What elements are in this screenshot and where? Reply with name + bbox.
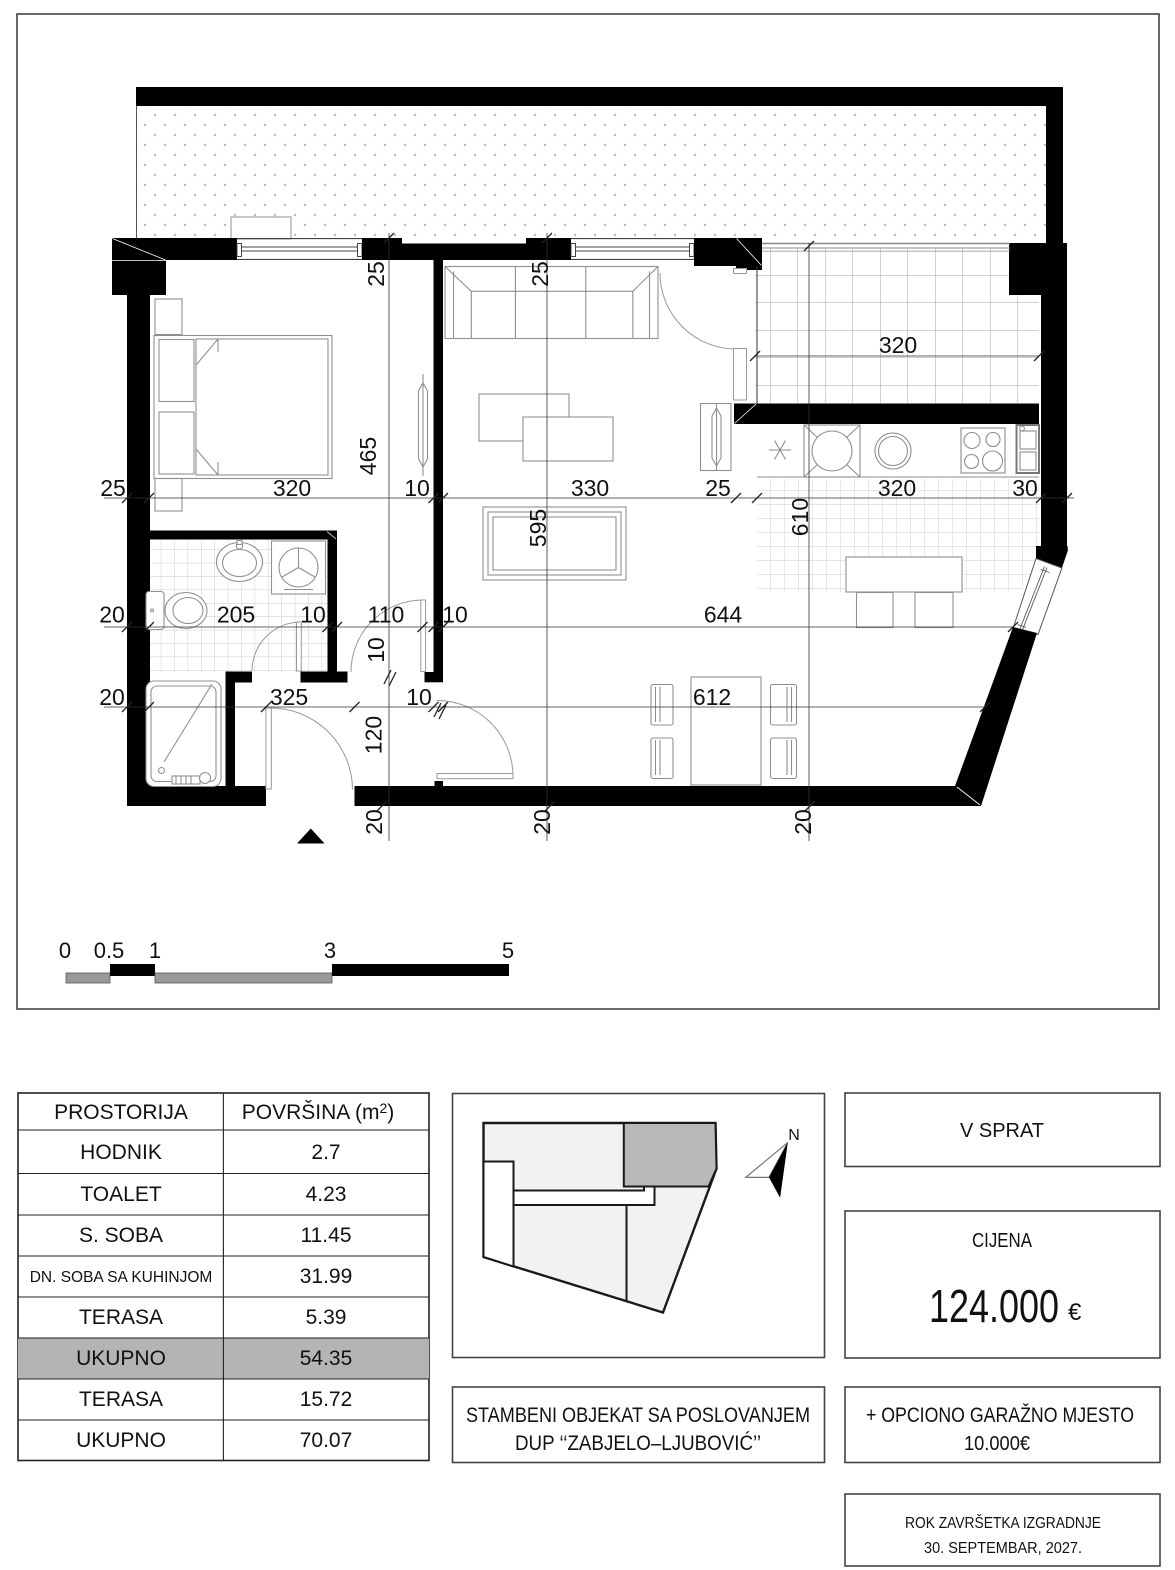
svg-text:25: 25: [705, 475, 731, 501]
svg-text:330: 330: [571, 475, 609, 501]
svg-text:0: 0: [59, 938, 71, 963]
svg-text:DUP ‘‘ZABJELO–LJUBOVIĆ’’: DUP ‘‘ZABJELO–LJUBOVIĆ’’: [515, 1432, 761, 1455]
svg-text:10: 10: [404, 475, 430, 501]
svg-text:320: 320: [879, 332, 917, 358]
svg-text:3: 3: [324, 938, 336, 963]
svg-text:20: 20: [361, 809, 387, 835]
svg-text:0.5: 0.5: [94, 938, 125, 963]
svg-text:5: 5: [502, 938, 514, 963]
svg-text:HODNIK: HODNIK: [80, 1141, 162, 1164]
svg-text:2.7: 2.7: [311, 1141, 340, 1164]
svg-text:70.07: 70.07: [300, 1429, 353, 1452]
svg-text:30: 30: [1012, 475, 1038, 501]
svg-text:PROSTORIJA: PROSTORIJA: [54, 1101, 188, 1124]
svg-text:25: 25: [527, 261, 553, 287]
svg-text:10: 10: [363, 637, 389, 663]
svg-text:610: 610: [787, 498, 813, 536]
svg-text:612: 612: [693, 684, 731, 710]
svg-text:1: 1: [149, 938, 161, 963]
svg-text:10: 10: [406, 684, 432, 710]
svg-text:25: 25: [100, 475, 126, 501]
svg-text:20: 20: [529, 809, 555, 835]
svg-text:320: 320: [878, 475, 916, 501]
svg-text:€: €: [1068, 1299, 1082, 1326]
svg-text:124.000: 124.000: [929, 1280, 1059, 1332]
svg-text:S. SOBA: S. SOBA: [79, 1224, 163, 1247]
svg-text:205: 205: [217, 602, 255, 628]
svg-text:5.39: 5.39: [306, 1306, 347, 1329]
svg-text:15.72: 15.72: [300, 1388, 353, 1411]
svg-text:UKUPNO: UKUPNO: [76, 1429, 166, 1452]
svg-text:20: 20: [99, 684, 125, 710]
svg-text:465: 465: [355, 437, 381, 475]
svg-text:DN. SOBA SA KUHINJOM: DN. SOBA SA KUHINJOM: [30, 1269, 213, 1286]
svg-text:31.99: 31.99: [300, 1265, 353, 1288]
svg-text:20: 20: [99, 602, 125, 628]
svg-text:30. SEPTEMBAR, 2027.: 30. SEPTEMBAR, 2027.: [924, 1540, 1082, 1557]
svg-text:10: 10: [300, 602, 326, 628]
svg-text:TOALET: TOALET: [80, 1183, 161, 1206]
svg-text:11.45: 11.45: [301, 1224, 352, 1247]
svg-text:TERASA: TERASA: [79, 1388, 163, 1411]
svg-text:595: 595: [525, 509, 551, 547]
svg-text:TERASA: TERASA: [79, 1306, 163, 1329]
svg-text:N: N: [788, 1127, 800, 1144]
svg-text:STAMBENI OBJEKAT SA POSLOVANJE: STAMBENI OBJEKAT SA POSLOVANJEM: [466, 1404, 810, 1427]
svg-text:25: 25: [363, 261, 389, 287]
svg-text:UKUPNO: UKUPNO: [76, 1347, 166, 1370]
svg-text:CIJENA: CIJENA: [972, 1230, 1033, 1252]
svg-text:20: 20: [790, 809, 816, 835]
svg-text:110: 110: [368, 602, 405, 628]
svg-text:V SPRAT: V SPRAT: [960, 1120, 1044, 1142]
svg-text:+ OPCIONO GARAŽNO MJESTO: + OPCIONO GARAŽNO MJESTO: [866, 1404, 1134, 1427]
svg-text:POVRŠINA (m2): POVRŠINA (m2): [242, 1100, 395, 1124]
svg-text:4.23: 4.23: [306, 1183, 347, 1206]
svg-text:325: 325: [270, 684, 308, 710]
svg-text:320: 320: [273, 475, 311, 501]
svg-text:644: 644: [704, 602, 743, 628]
svg-text:10.000€: 10.000€: [964, 1433, 1030, 1455]
svg-text:10: 10: [442, 602, 468, 628]
svg-text:54.35: 54.35: [300, 1347, 353, 1370]
svg-text:ROK ZAVRŠETKA IZGRADNJE: ROK ZAVRŠETKA IZGRADNJE: [905, 1513, 1101, 1532]
svg-text:120: 120: [361, 716, 387, 754]
